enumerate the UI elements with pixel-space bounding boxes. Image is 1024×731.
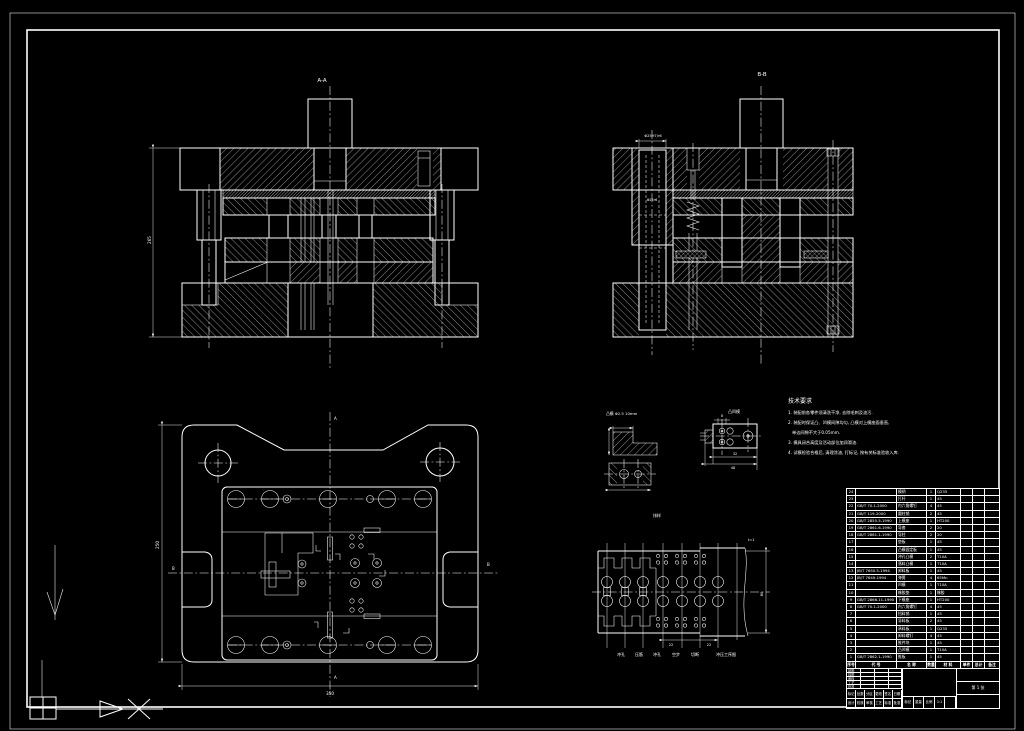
station-label-2: 压筋	[635, 651, 643, 657]
note-line-4: 3. 模具闭合高度及活动部位加润滑油.	[788, 439, 857, 446]
dim-a-height: 265	[147, 236, 152, 244]
station-label-1: 冲孔	[617, 651, 625, 657]
note-line-3: 单边间隙不大于0.05mm.	[792, 429, 840, 436]
bom-row: 9 GB/T 2866.11-1990 下模座 1 HT200	[847, 597, 999, 604]
bom-header-code: 代 号	[856, 662, 897, 669]
bom-row: 8 GB/T 70.1-2000 内六角螺钉 4 45	[847, 604, 999, 611]
bom-header-total: 总计	[973, 662, 985, 669]
bom-rows: 24 模柄 1 Q235 23 打杆 1 45 22	[847, 489, 999, 662]
bom-row: 7 挡料销 1 45	[847, 611, 999, 618]
bom-row: 11 凹模 1 T10A	[847, 582, 999, 589]
bom-row: 20 GB/T 2855.5-1990 上模座 1 HT200	[847, 518, 999, 525]
title-block: 制图 描图 审核 工艺 批准 标记 处数 分区 更改 签名 日期 设计 校核	[847, 669, 999, 708]
dim-b-pillar2: Φ25r6	[647, 198, 658, 202]
bom-row: 1 GB/T 2862.1-1990 推板 1 45	[847, 654, 999, 661]
bom-row: 18 GB/T 2861.1-1990 导柱 2 20	[847, 532, 999, 539]
plan-mark-top: A	[334, 416, 337, 421]
station-label-5: 切断	[691, 651, 699, 657]
plan-mark-bottom: A	[334, 675, 337, 680]
bom-row: 13 JB/T 7650.5-1994 卸料板 1 45	[847, 568, 999, 575]
section-view-a-a: A-A	[147, 78, 478, 368]
dim-strip-step2: 22	[707, 643, 711, 647]
detail-view-punch: 凸模 Φ2.5 10mm	[604, 411, 657, 490]
dim-plan-width: 350	[326, 691, 334, 696]
bom-header-seq: 序号	[847, 662, 856, 669]
detail2-label: 凸凹模	[728, 408, 740, 414]
bom-row: 14 落料凸模 1 T10A	[847, 561, 999, 568]
bom-row: 17 垫板 1 45	[847, 539, 999, 546]
bom-row: 21 GB/T 119-2000 圆柱销 2 45	[847, 511, 999, 518]
bom-row: 2 凸凹模 1 T10A	[847, 647, 999, 654]
title-block-name-area: 标记 重量 比例 1:1	[903, 669, 957, 708]
dim-strip-step: 22	[669, 643, 673, 647]
plan-mark-right: B	[487, 562, 490, 567]
dim-b-pillar: Φ25H7/r6	[644, 134, 662, 138]
bom-header: 序号 代 号 名 称 数量 材 料 单件 总计 备注	[847, 662, 999, 669]
station-label-4: 空步	[672, 651, 680, 657]
strip-layout: 排样 22 22 80 t=1 冲孔 压筋 冲孔 空步 切断 冲压工序图	[592, 512, 770, 657]
strip-title: 排样	[653, 512, 661, 518]
plan-view: B B A A 250 350	[155, 412, 498, 697]
drawing-sheet: A-A	[0, 0, 1024, 731]
detail1-label: 凸模 Φ2.5 10mm	[606, 411, 638, 416]
note-line-1: 1. 装配前各零件须清洗干净, 去除毛刺及油污.	[788, 409, 873, 416]
detail-view-die: 凸凹模 8 32 48	[700, 408, 762, 470]
section-a-label: A-A	[317, 78, 327, 84]
screw-holes-bottom	[228, 637, 432, 654]
bom-header-material: 材 料	[936, 662, 961, 669]
section-b-label: B-B	[757, 72, 767, 78]
bom-row: 12 JB/T 7649-1994 弹簧 4 65Mn	[847, 575, 999, 582]
notes-title: 技术要求	[788, 397, 812, 405]
screw-holes-top	[228, 491, 432, 508]
bom-row: 5 承料板 1 Q235	[847, 626, 999, 633]
corner-marks	[30, 545, 163, 719]
drawing-name-box	[903, 669, 956, 697]
bom-row: 22 GB/T 70.1-2000 内六角螺钉 4 45	[847, 503, 999, 510]
bom-row: 6 导料板 2 45	[847, 618, 999, 625]
detail2-dim1: 32	[733, 452, 737, 456]
station-label-3: 冲孔	[653, 651, 661, 657]
bom-row: 15 冲孔凸模 2 T10A	[847, 554, 999, 561]
bom-row: 3 推件块 1 45	[847, 640, 999, 647]
detail2-dim2: 48	[731, 466, 735, 470]
note-line-2: 2. 装配时保证凸、凹模间隙均匀, 凸模对上模座面垂直,	[788, 419, 889, 426]
bom-header-note: 备注	[985, 662, 999, 669]
strip-holes	[602, 577, 724, 607]
bom-table: 24 模柄 1 Q235 23 打杆 1 45 22	[846, 488, 1000, 709]
bom-header-unit: 单件	[961, 662, 973, 669]
bom-row: 19 GB/T 2861.6-1990 导套 2 20	[847, 525, 999, 532]
bom-row: 23 打杆 1 45	[847, 496, 999, 503]
bom-header-name: 名 称	[897, 662, 927, 669]
bom-row: 10 橡胶垫 1 橡胶	[847, 590, 999, 597]
bom-header-qty: 数量	[927, 662, 936, 669]
title-block-right: 第 1 张	[957, 669, 999, 708]
dim-plan-height: 250	[155, 541, 160, 549]
dim-strip-width: 80	[759, 591, 764, 596]
sheet-count: 第 1 张	[957, 682, 999, 695]
plan-mark-left: B	[172, 566, 175, 571]
pilot-holes	[350, 535, 382, 612]
note-line-5: 4. 试模检验合格后, 清理涂油, 打标记, 按有关标准验收入库.	[788, 449, 899, 456]
title-block-signatures: 制图 描图 审核 工艺 批准 标记 处数 分区 更改 签名 日期 设计 校核	[847, 669, 903, 708]
dim-strip-t: t=1	[748, 538, 755, 542]
bom-row: 16 凸模固定板 1 45	[847, 547, 999, 554]
detail2-dim-top: 8	[721, 414, 723, 418]
section-view-b-b: B-B Φ25H7/r6 Φ25r6	[613, 72, 853, 365]
tech-notes: 技术要求 1. 装配前各零件须清洗干净, 去除毛刺及油污. 2. 装配时保证凸、…	[788, 397, 899, 456]
bom-row: 4 卸料螺钉 4 45	[847, 633, 999, 640]
bom-row: 24 模柄 1 Q235	[847, 489, 999, 496]
station-label-6: 冲压工序图	[716, 651, 736, 657]
